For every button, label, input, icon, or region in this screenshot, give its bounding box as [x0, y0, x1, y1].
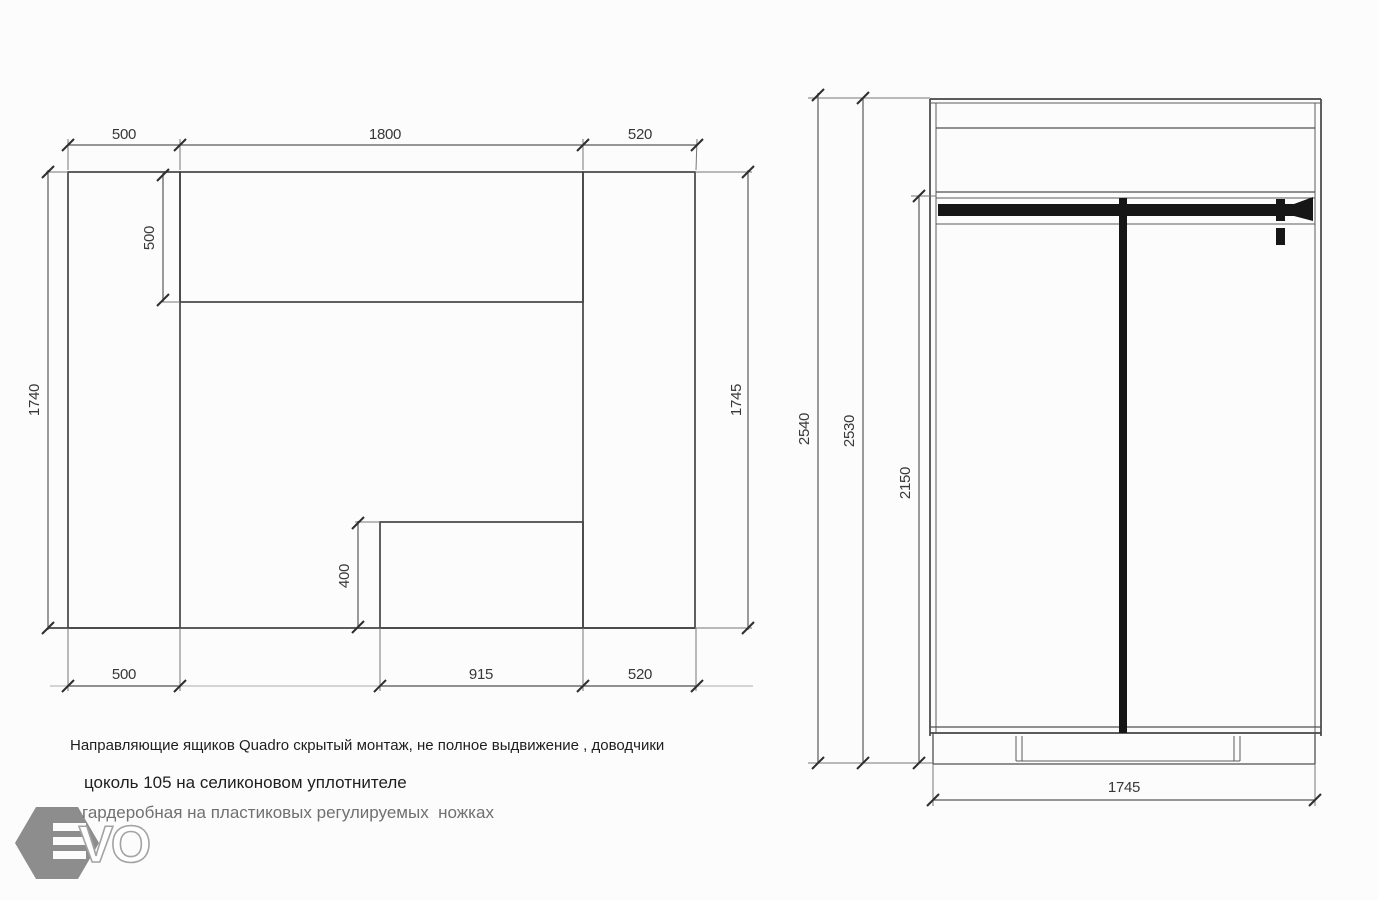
note-plinth: цоколь 105 на селиконовом уплотнителе — [84, 773, 407, 793]
dim-label-overall-height: 2540 — [796, 413, 813, 445]
plan-top-band — [180, 172, 583, 302]
dim-label-body-height: 2530 — [841, 415, 858, 447]
dim-label-bottom-right: 520 — [628, 666, 652, 683]
dim-label-top-right: 520 — [628, 126, 652, 143]
dim-label-hanging-height: 2150 — [897, 467, 914, 499]
note-legs: гардеробная на пластиковых регулируемых … — [82, 803, 494, 823]
plan-bottom-box — [380, 522, 583, 628]
rail-end-wedge — [1294, 197, 1313, 221]
technical-drawing: 500 1800 520 1740 500 1745 400 500 915 5… — [0, 0, 1378, 900]
front-view: 2540 2530 2150 1745 — [796, 89, 1321, 806]
dim-label-bottom-middle: 915 — [469, 666, 493, 683]
rail-bracket-lower — [1276, 228, 1285, 245]
logo-letter-v: V — [79, 816, 114, 874]
drawing-canvas: 500 1800 520 1740 500 1745 400 500 915 5… — [0, 0, 1378, 900]
dim-label-right-height: 1745 — [728, 384, 745, 416]
rail-bracket-upper — [1276, 199, 1285, 221]
plan-right-column — [583, 172, 695, 628]
extension-line — [696, 139, 697, 170]
dim-label-inner-box: 400 — [336, 564, 353, 588]
dim-label-left-height: 1740 — [26, 384, 43, 416]
note-drawer-runners: Направляющие ящиков Quadro скрытый монта… — [70, 737, 664, 754]
dim-label-top-middle: 1800 — [369, 126, 401, 143]
dim-label-width: 1745 — [1108, 779, 1140, 796]
dim-label-inner-top: 500 — [141, 226, 158, 250]
logo-letter-o: O — [111, 816, 151, 874]
plan-view: 500 1800 520 1740 500 1745 400 500 915 5… — [26, 126, 754, 692]
dim-label-top-left: 500 — [112, 126, 136, 143]
center-divider — [1119, 198, 1127, 733]
dim-label-bottom-left: 500 — [112, 666, 136, 683]
